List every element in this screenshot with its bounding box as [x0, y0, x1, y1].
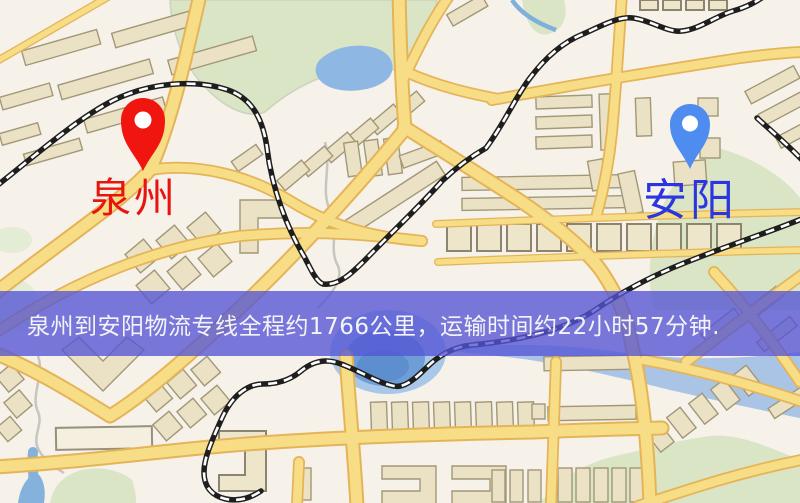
destination-city-label: 安阳	[643, 177, 737, 225]
origin-city-label: 泉州	[90, 176, 178, 221]
route-info-banner: 泉州到安阳物流专线全程约1766公里，运输时间约22小时57分钟.	[0, 291, 800, 356]
logistics-route-map: 泉州到安阳物流专线全程约1766公里，运输时间约22小时57分钟. 泉州 安阳	[0, 0, 800, 503]
map-image	[0, 0, 800, 503]
route-info-text: 泉州到安阳物流专线全程约1766公里，运输时间约22小时57分钟.	[0, 307, 720, 341]
